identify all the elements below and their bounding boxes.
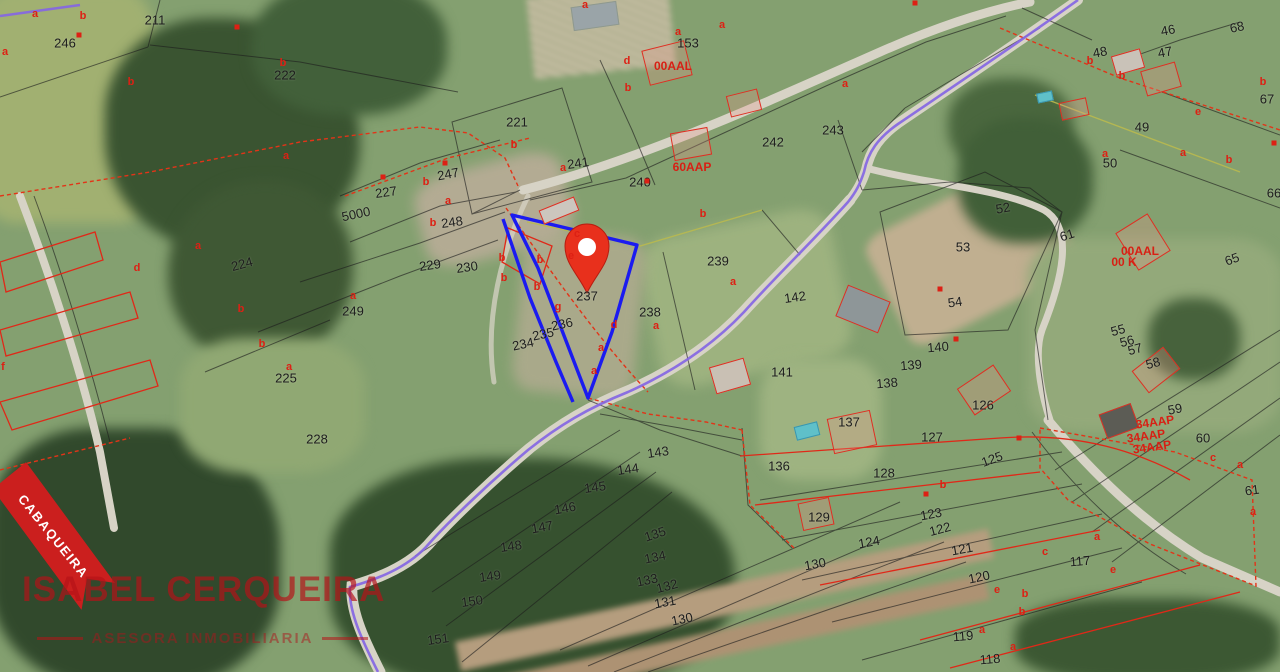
subparcel-letter-label: a xyxy=(730,276,736,288)
parcel-number-label: 148 xyxy=(499,537,523,555)
subparcel-letter-label: a xyxy=(598,342,604,354)
parcel-number-label: 122 xyxy=(928,519,953,539)
subparcel-letter-label: b xyxy=(700,208,707,220)
subparcel-letter-label: d xyxy=(134,262,141,274)
parcel-number-label: 142 xyxy=(783,288,807,306)
parcel-number-label: 49 xyxy=(1135,120,1149,135)
parcel-number-label: 234 xyxy=(511,334,535,353)
subparcel-letter-label: a xyxy=(719,19,725,31)
parcel-number-label: 60 xyxy=(1196,431,1210,446)
subparcel-letter-label: b xyxy=(940,479,947,491)
parcel-number-label: 131 xyxy=(653,593,677,612)
parcel-number-label: 227 xyxy=(374,183,398,201)
parcel-number-label: 68 xyxy=(1228,18,1245,36)
subparcel-letter-label: e xyxy=(1110,564,1116,576)
parcel-number-label: 150 xyxy=(460,592,484,610)
subparcel-letter-label: b xyxy=(499,252,506,264)
subparcel-letter-label: b xyxy=(1019,606,1026,618)
red-square-marker xyxy=(924,492,929,497)
cadastral-code-label: 00AAL xyxy=(654,59,692,73)
parcel-number-label: 66 xyxy=(1267,186,1280,201)
parcel-number-label: 61 xyxy=(1244,482,1260,499)
parcel-number-label: 242 xyxy=(762,135,784,150)
parcel-number-label: 235 xyxy=(531,324,555,343)
subparcel-letter-label: a xyxy=(286,361,292,373)
subparcel-letter-label: b xyxy=(430,217,437,229)
subparcel-letter-label: a xyxy=(1102,148,1108,160)
parcel-number-label: 230 xyxy=(455,258,479,276)
parcel-number-label: 127 xyxy=(921,430,943,445)
parcel-number-label: 130 xyxy=(803,555,827,574)
red-square-marker xyxy=(1017,436,1022,441)
parcel-number-label: 243 xyxy=(822,123,844,138)
parcel-number-label: 146 xyxy=(553,499,577,518)
subparcel-letter-label: e xyxy=(994,584,1000,596)
red-square-marker xyxy=(381,175,386,180)
parcel-number-label: 48 xyxy=(1092,43,1109,60)
subparcel-letter-label: a xyxy=(1094,531,1100,543)
subparcel-letter-label: b xyxy=(1022,588,1029,600)
cadastral-map: 2462112222211532422432412402472275000248… xyxy=(0,0,1280,672)
subparcel-letter-label: a xyxy=(560,162,566,174)
cadastral-code-label: 00 K xyxy=(1111,255,1136,269)
red-square-marker xyxy=(77,33,82,38)
parcel-number-label: 151 xyxy=(426,630,450,648)
parcel-number-label: 47 xyxy=(1157,43,1174,60)
subparcel-letter-label: a xyxy=(582,0,588,11)
subparcel-letter-label: a xyxy=(195,240,201,252)
subparcel-letter-label: b xyxy=(280,57,287,69)
parcel-number-label: 119 xyxy=(952,628,974,645)
parcel-number-label: 224 xyxy=(230,254,255,274)
parcel-number-label: 120 xyxy=(967,567,991,586)
parcel-number-label: 237 xyxy=(576,289,598,304)
subparcel-letter-label: b xyxy=(423,176,430,188)
parcel-number-label: 136 xyxy=(768,459,790,474)
parcel-number-label: 229 xyxy=(418,256,442,274)
parcel-number-label: 241 xyxy=(566,154,590,172)
parcel-number-label: 147 xyxy=(530,518,554,537)
parcel-number-label: 149 xyxy=(478,567,502,585)
watermark-subtitle: ASESORA INMOBILIARIA xyxy=(30,630,375,647)
red-square-marker xyxy=(954,337,959,342)
subparcel-letter-label: a xyxy=(1250,506,1256,518)
parcel-number-label: 139 xyxy=(900,357,923,374)
red-square-marker xyxy=(235,25,240,30)
parcel-number-label: 228 xyxy=(306,432,328,447)
parcel-number-label: 117 xyxy=(1069,553,1091,570)
parcel-number-label: 249 xyxy=(342,304,364,319)
subparcel-letter-label: b xyxy=(1260,76,1267,88)
subparcel-letter-label: b xyxy=(625,82,632,94)
subparcel-letter-label: a xyxy=(1237,459,1243,471)
parcel-number-label: 54 xyxy=(947,294,963,311)
subparcel-letter-label: a xyxy=(32,8,38,20)
red-square-marker xyxy=(443,161,448,166)
subparcel-letter-label: b xyxy=(1226,154,1233,166)
parcel-number-label: 46 xyxy=(1160,21,1177,38)
parcel-number-label: 248 xyxy=(440,213,464,231)
parcel-number-label: 238 xyxy=(639,305,661,320)
watermark-dash xyxy=(322,637,368,640)
parcel-number-label: 246 xyxy=(54,36,76,51)
parcel-number-label: 222 xyxy=(274,68,296,83)
parcel-number-label: 58 xyxy=(1144,354,1162,372)
parcel-number-label: 143 xyxy=(646,443,670,461)
parcel-number-label: 135 xyxy=(642,524,667,545)
subparcel-letter-label: b xyxy=(1119,70,1126,82)
parcel-number-label: 221 xyxy=(506,115,528,130)
watermark-title: ISABEL CERQUEIRA xyxy=(22,570,382,610)
parcel-number-label: 144 xyxy=(616,460,640,478)
subparcel-letter-label: f xyxy=(1,361,5,373)
red-square-marker xyxy=(913,1,918,6)
subparcel-letter-label: a xyxy=(675,26,681,38)
parcel-number-label: 65 xyxy=(1223,249,1242,268)
parcel-number-label: 5000 xyxy=(340,204,371,225)
subparcel-letter-label: b xyxy=(259,338,266,350)
parcel-number-label: 129 xyxy=(808,510,830,525)
parcel-number-label: 52 xyxy=(995,199,1012,216)
red-square-marker xyxy=(938,287,943,292)
subparcel-letter-label: a xyxy=(1010,641,1016,653)
subparcel-letter-label: b xyxy=(511,139,518,151)
parcel-number-label: 57 xyxy=(1126,340,1144,358)
subparcel-letter-label: c xyxy=(1042,546,1048,558)
subparcel-letter-label: b xyxy=(80,10,87,22)
subparcel-letter-label: b xyxy=(537,254,544,266)
subparcel-letter-label: c xyxy=(574,228,580,240)
parcel-number-label: 67 xyxy=(1260,92,1274,107)
subparcel-letter-label: a xyxy=(350,290,356,302)
parcel-number-label: 125 xyxy=(979,448,1005,470)
parcel-number-label: 239 xyxy=(707,254,729,269)
parcel-number-label: 126 xyxy=(972,398,994,413)
subparcel-letter-label: g xyxy=(555,301,562,313)
subparcel-letter-label: a xyxy=(445,195,451,207)
parcel-number-label: 140 xyxy=(927,339,950,356)
parcel-number-label: 211 xyxy=(145,13,166,28)
parcel-number-label: 141 xyxy=(771,365,793,380)
subparcel-letter-label: c xyxy=(1210,452,1216,464)
subparcel-letter-label: a xyxy=(591,365,597,377)
subparcel-letter-label: e xyxy=(1195,106,1201,118)
parcel-number-label: 128 xyxy=(873,466,895,481)
watermark-dash xyxy=(37,637,83,640)
subparcel-letter-label: b xyxy=(1087,55,1094,67)
subparcel-letter-label: b xyxy=(534,281,541,293)
subparcel-letter-label: a xyxy=(653,320,659,332)
parcel-number-label: 130 xyxy=(670,609,694,628)
subparcel-letter-label: b xyxy=(501,272,508,284)
subparcel-letter-label: d xyxy=(624,55,631,67)
subparcel-letter-label: e xyxy=(568,250,574,262)
parcel-number-label: 121 xyxy=(950,540,974,559)
parcel-number-label: 124 xyxy=(857,533,881,552)
subparcel-letter-label: a xyxy=(842,78,848,90)
subparcel-letter-label: a xyxy=(283,150,289,162)
parcel-number-label: 138 xyxy=(876,375,899,392)
parcel-number-label: 118 xyxy=(979,651,1001,668)
subparcel-letter-label: b xyxy=(128,76,135,88)
parcel-number-label: 247 xyxy=(436,165,460,184)
parcel-number-label: 137 xyxy=(838,415,860,430)
parcel-number-label: 145 xyxy=(583,478,607,496)
subparcel-letter-label: a xyxy=(1180,147,1186,159)
red-square-marker xyxy=(645,179,650,184)
subparcel-letter-label: a xyxy=(979,624,985,636)
subparcel-letter-label: d xyxy=(611,319,618,331)
subparcel-letter-label: a xyxy=(2,46,8,58)
parcel-number-label: 53 xyxy=(956,240,970,255)
parcel-number-label: 61 xyxy=(1058,226,1076,245)
cadastral-code-label: 60AAP xyxy=(673,160,712,174)
parcel-number-label: 134 xyxy=(643,547,667,566)
red-square-marker xyxy=(1272,141,1277,146)
watermark-subtitle-text: ASESORA INMOBILIARIA xyxy=(92,630,314,647)
subparcel-letter-label: b xyxy=(238,303,245,315)
